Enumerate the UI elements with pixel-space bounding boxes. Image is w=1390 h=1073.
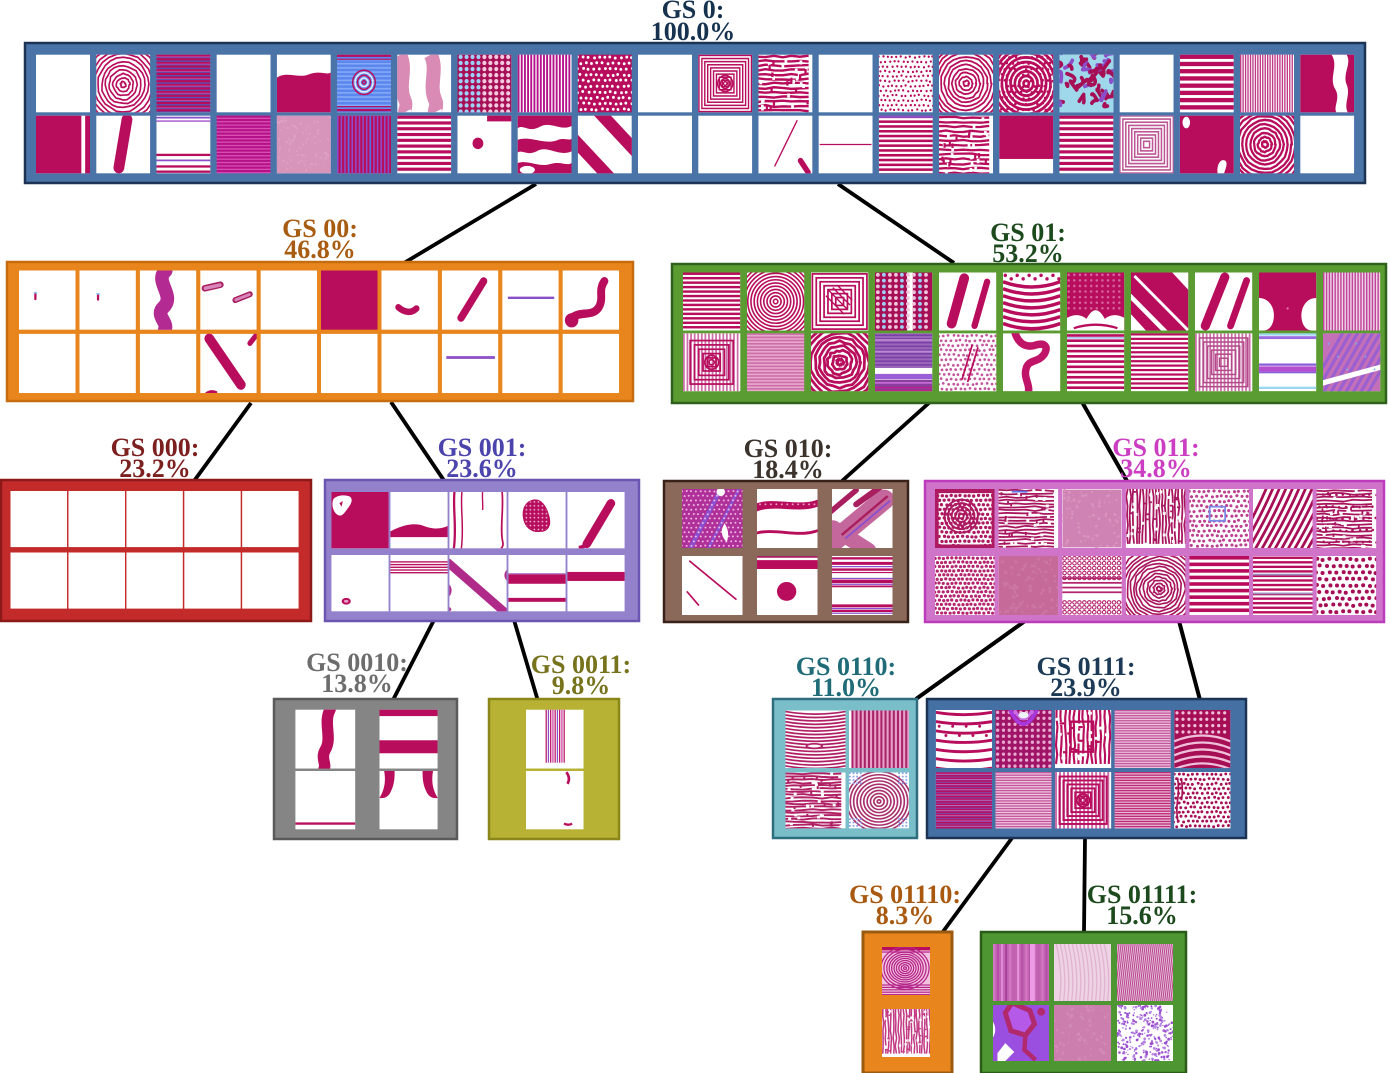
svg-text:GS 01:53.2%: GS 01:53.2% [990, 218, 1066, 268]
svg-text:GS 0010:13.8%: GS 0010:13.8% [306, 648, 408, 698]
svg-text:GS 00:46.8%: GS 00:46.8% [282, 214, 358, 264]
svg-text:GS 0:100.0%: GS 0:100.0% [651, 0, 736, 46]
svg-text:GS 0111:23.9%: GS 0111:23.9% [1037, 652, 1136, 702]
svg-text:GS 000:23.2%: GS 000:23.2% [111, 433, 200, 483]
svg-text:GS 010:18.4%: GS 010:18.4% [744, 434, 833, 484]
svg-text:GS 001:23.6%: GS 001:23.6% [438, 433, 527, 483]
svg-text:GS 011:34.8%: GS 011:34.8% [1112, 433, 1199, 483]
